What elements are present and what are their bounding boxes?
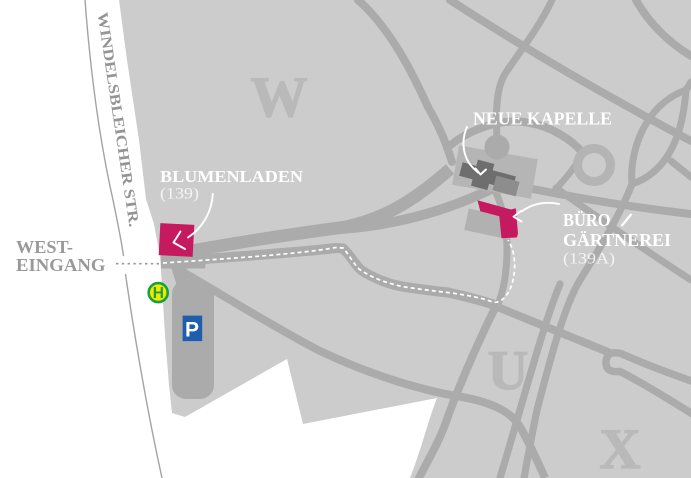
svg-text:U: U <box>488 340 528 402</box>
svg-text:WEST-: WEST- <box>16 237 73 257</box>
svg-text:NEUE KAPELLE: NEUE KAPELLE <box>473 109 612 129</box>
svg-text:(139A): (139A) <box>563 251 615 268</box>
svg-text:BÜRO: BÜRO <box>563 210 611 230</box>
svg-text:X: X <box>599 418 640 478</box>
svg-text:EINGANG: EINGANG <box>16 255 106 275</box>
svg-text:GÄRTNEREI: GÄRTNEREI <box>563 230 671 250</box>
svg-text:P: P <box>185 318 199 341</box>
svg-text:H: H <box>153 285 164 302</box>
svg-text:(139): (139) <box>160 186 199 203</box>
svg-text:BLUMENLADEN: BLUMENLADEN <box>160 167 304 186</box>
svg-text:W: W <box>251 66 308 129</box>
